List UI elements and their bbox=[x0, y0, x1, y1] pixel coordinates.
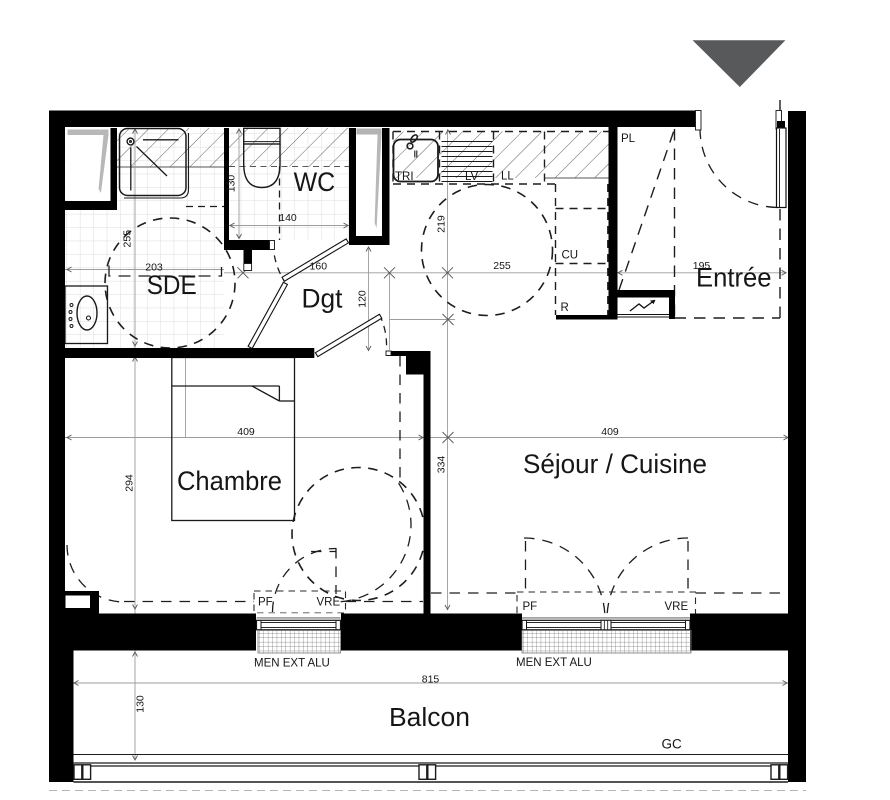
svg-text:Séjour / Cuisine: Séjour / Cuisine bbox=[523, 449, 707, 479]
svg-text:PF: PF bbox=[523, 601, 538, 613]
svg-text:CU: CU bbox=[562, 250, 579, 262]
svg-text:MEN EXT ALU: MEN EXT ALU bbox=[254, 658, 330, 670]
svg-text:255: 255 bbox=[122, 230, 134, 248]
svg-text:815: 815 bbox=[422, 673, 440, 685]
svg-text:294: 294 bbox=[124, 474, 136, 492]
svg-text:195: 195 bbox=[693, 260, 711, 272]
svg-text:140: 140 bbox=[279, 212, 297, 224]
svg-text:MEN EXT ALU: MEN EXT ALU bbox=[516, 657, 592, 669]
svg-text:Chambre: Chambre bbox=[177, 466, 282, 496]
svg-text:409: 409 bbox=[601, 426, 619, 438]
svg-text:LL: LL bbox=[501, 171, 514, 183]
svg-text:Balcon: Balcon bbox=[389, 704, 470, 732]
svg-text:WC: WC bbox=[294, 167, 336, 197]
svg-text:GC: GC bbox=[662, 737, 683, 752]
svg-text:409: 409 bbox=[237, 426, 255, 438]
svg-text:160: 160 bbox=[310, 261, 328, 273]
svg-text:PF: PF bbox=[258, 597, 273, 609]
svg-text:VRE: VRE bbox=[317, 597, 341, 609]
svg-text:TRI: TRI bbox=[395, 171, 414, 183]
svg-text:SDE: SDE bbox=[147, 270, 197, 300]
svg-text:PL: PL bbox=[621, 133, 636, 145]
svg-text:130: 130 bbox=[226, 175, 238, 193]
svg-text:255: 255 bbox=[493, 260, 511, 272]
svg-text:R: R bbox=[561, 302, 569, 314]
svg-text:120: 120 bbox=[357, 290, 369, 308]
svg-text:334: 334 bbox=[436, 456, 448, 474]
svg-text:219: 219 bbox=[436, 215, 448, 233]
svg-text:203: 203 bbox=[145, 261, 163, 273]
svg-text:Dgt: Dgt bbox=[302, 284, 344, 314]
svg-text:130: 130 bbox=[135, 695, 147, 713]
svg-text:LV: LV bbox=[465, 171, 479, 183]
svg-text:VRE: VRE bbox=[665, 601, 689, 613]
